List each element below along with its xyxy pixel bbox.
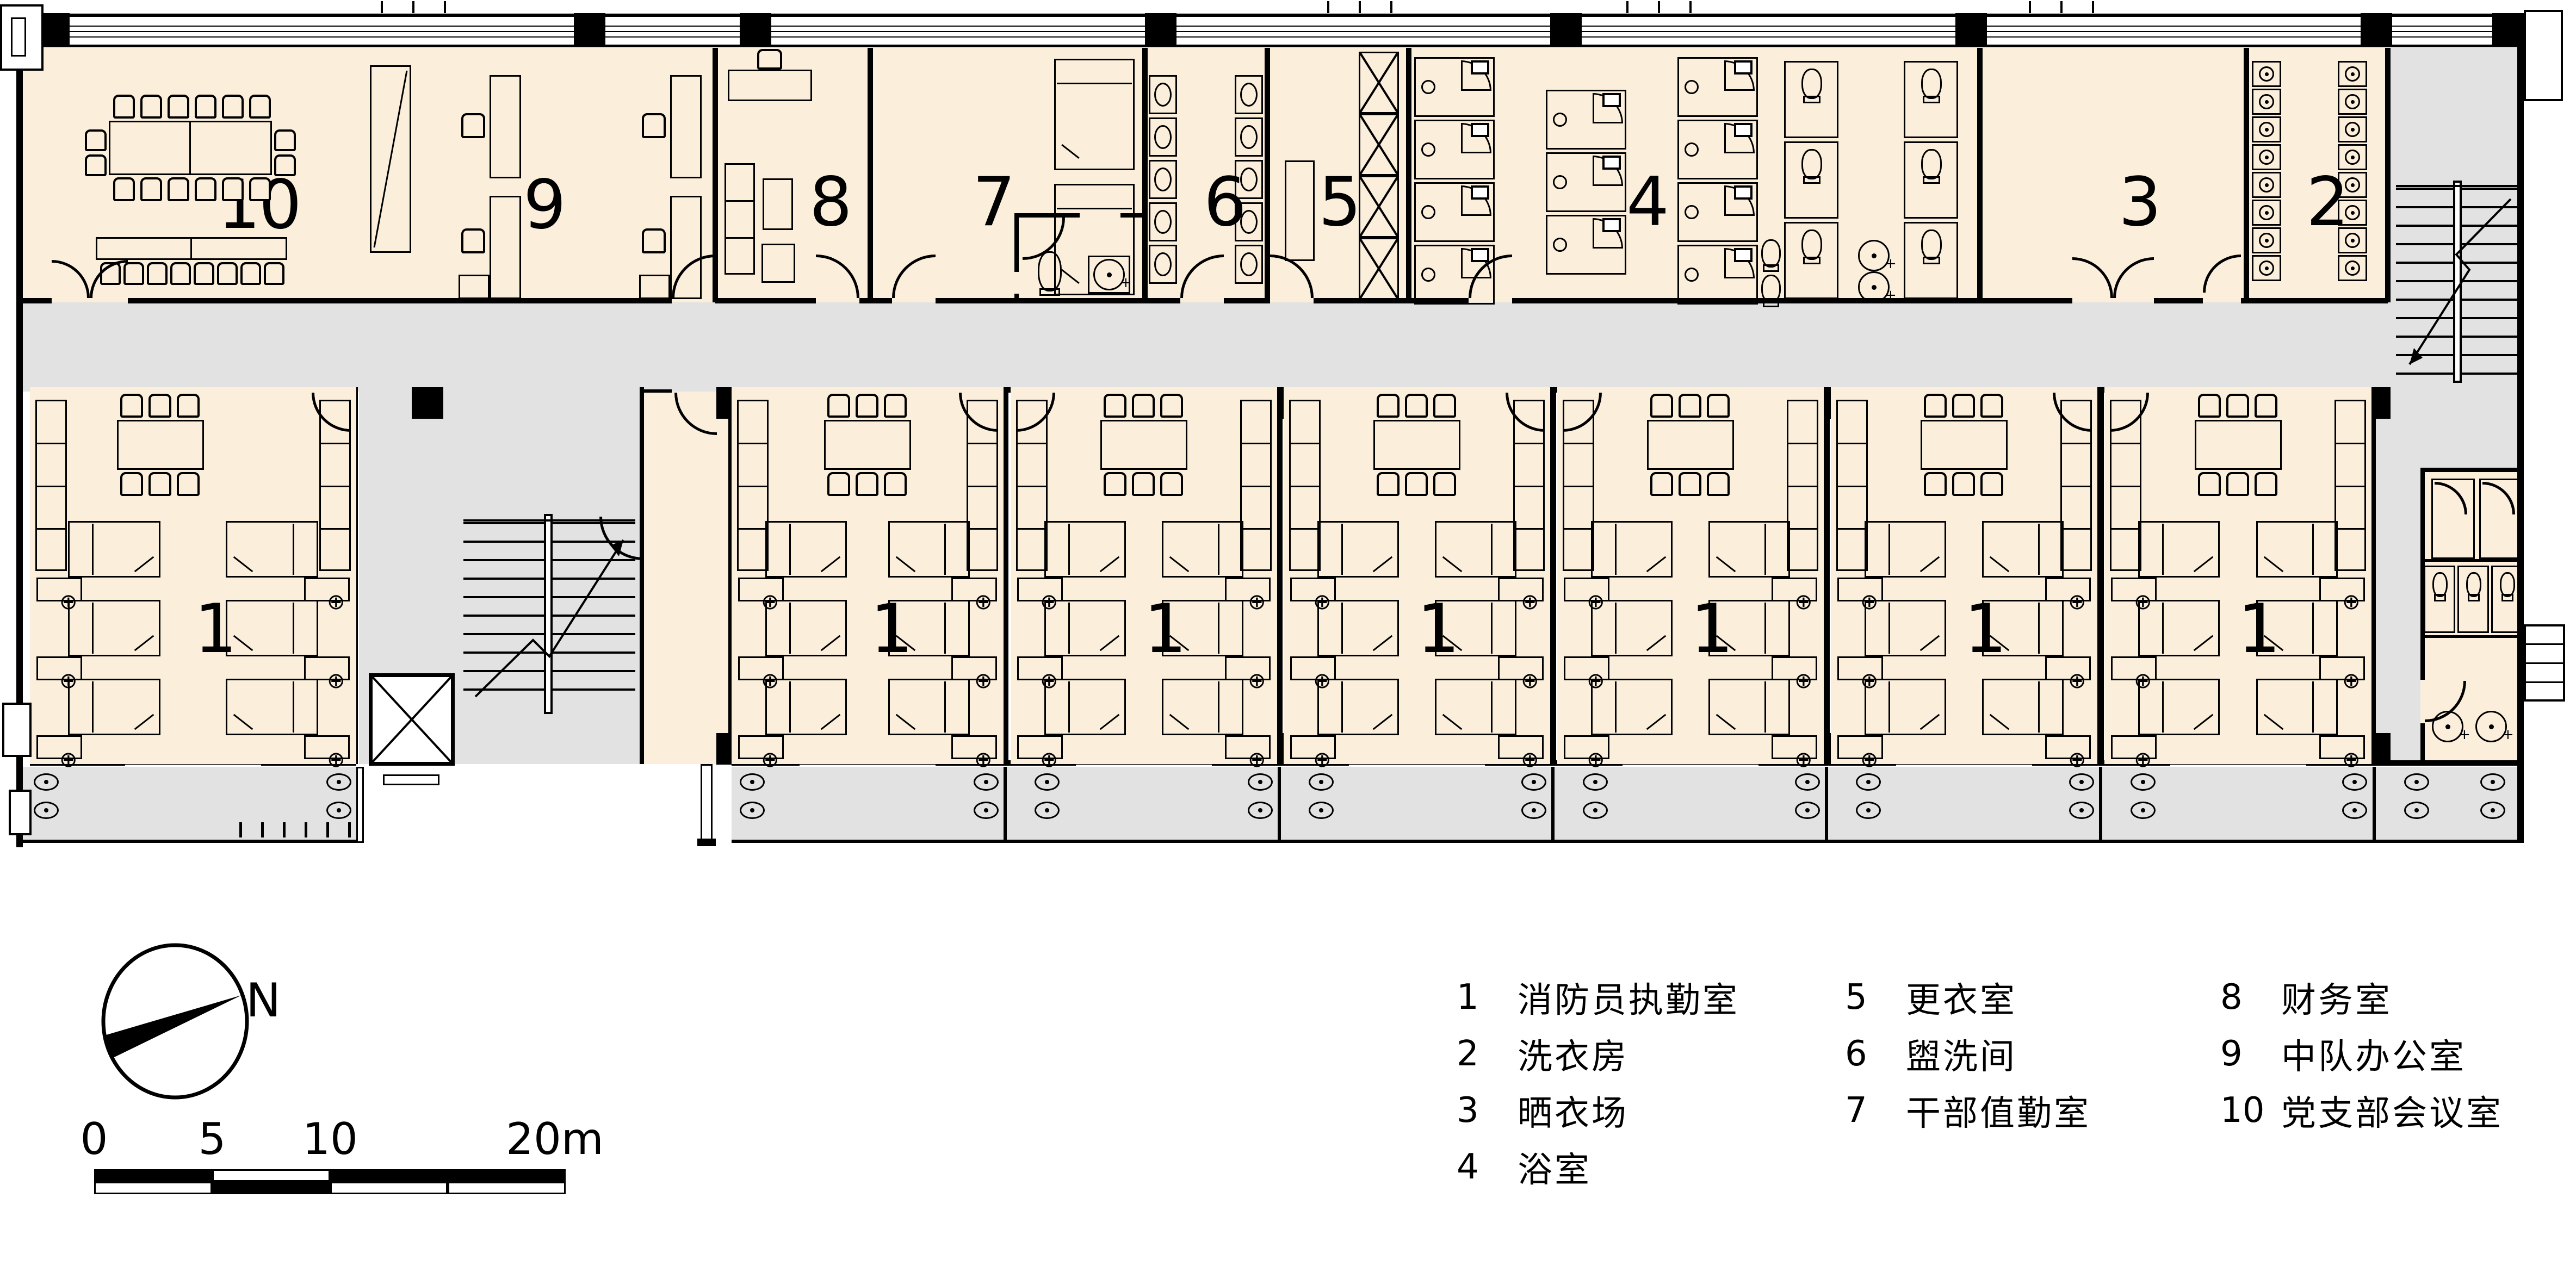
facade-tick bbox=[1359, 1, 1361, 13]
bed-pillow-line bbox=[1888, 524, 1890, 575]
balcony-grille-tick bbox=[305, 822, 307, 837]
legend-label: 盥洗间 bbox=[1906, 1029, 2017, 1079]
chair bbox=[2226, 472, 2249, 496]
floor-drain-dot bbox=[2414, 780, 2419, 784]
bed bbox=[1162, 521, 1243, 578]
bed-pillow-line bbox=[2312, 524, 2314, 575]
balcony-divider bbox=[1551, 767, 1555, 840]
floor-drain-dot bbox=[1258, 808, 1262, 812]
scale-label-10: 10 bbox=[302, 1114, 358, 1164]
bed-pillow-line bbox=[293, 603, 294, 654]
stair-landing-edge bbox=[463, 519, 635, 522]
bed bbox=[1162, 600, 1243, 656]
bed-pillow-line bbox=[293, 681, 294, 733]
chair bbox=[1952, 472, 1975, 496]
legend-item: 7干部值勤室 bbox=[1845, 1082, 2091, 1139]
legend-label: 更衣室 bbox=[1906, 972, 2017, 1022]
shower-head bbox=[1734, 123, 1753, 137]
shower-drain bbox=[1421, 268, 1435, 282]
legend-num: 2 bbox=[1457, 1034, 1518, 1074]
chair bbox=[757, 49, 782, 70]
chair bbox=[148, 472, 171, 496]
toilet-tank bbox=[1923, 257, 1940, 264]
bed-pillow-line bbox=[1615, 681, 1617, 733]
step-line bbox=[2524, 662, 2565, 664]
armchair bbox=[761, 244, 795, 283]
toilet bbox=[1921, 229, 1942, 260]
wardrobe-divider bbox=[319, 528, 351, 530]
corridor bbox=[23, 302, 2524, 392]
washer-dot bbox=[2265, 128, 2269, 132]
toilet bbox=[1801, 229, 1822, 260]
toilet bbox=[1761, 239, 1781, 268]
balcony-end-post bbox=[356, 767, 364, 843]
facade-tick bbox=[412, 1, 414, 13]
bed-pillow-line bbox=[1057, 208, 1132, 209]
chair bbox=[85, 154, 107, 176]
legend-item: 5更衣室 bbox=[1845, 969, 2091, 1026]
balcony-divider bbox=[2099, 767, 2102, 840]
elevator-sill bbox=[383, 774, 439, 785]
legend-item: 1消防员执勤室 bbox=[1457, 969, 1739, 1026]
wardrobe-divider bbox=[1016, 486, 1048, 487]
bed-pillow-line bbox=[2038, 603, 2040, 654]
desk bbox=[490, 75, 521, 178]
legend-num: 7 bbox=[1845, 1090, 1906, 1131]
wardrobe-divider bbox=[1513, 443, 1545, 444]
shower-head bbox=[1471, 60, 1489, 75]
chair bbox=[222, 95, 244, 119]
legend-num: 9 bbox=[2220, 1034, 2281, 1074]
wall bbox=[740, 13, 771, 45]
shower-drain bbox=[1421, 205, 1435, 219]
chair bbox=[1433, 394, 1456, 418]
bed bbox=[226, 679, 318, 735]
floor-drain-dot bbox=[1593, 780, 1597, 784]
floor-drain-dot bbox=[1258, 780, 1262, 784]
floor-drain-dot bbox=[1045, 808, 1049, 812]
floor-drain-dot bbox=[1532, 780, 1536, 784]
north-label: N bbox=[246, 973, 281, 1028]
wall bbox=[1550, 387, 1556, 764]
shower-drain bbox=[1421, 80, 1435, 94]
washer-dot bbox=[2265, 156, 2269, 159]
bed bbox=[2256, 521, 2338, 578]
stair-rail-extension bbox=[701, 764, 713, 843]
bed-pillow-line bbox=[293, 524, 294, 575]
shower-head bbox=[1734, 185, 1753, 200]
locker-x-icon bbox=[1359, 238, 1399, 300]
wall bbox=[2361, 13, 2392, 45]
floor-drain-dot bbox=[2141, 808, 2145, 812]
wall bbox=[16, 298, 52, 303]
washbasin-bowl bbox=[1240, 167, 1258, 191]
floor-drain-dot bbox=[1045, 780, 1049, 784]
chair bbox=[461, 113, 485, 138]
wardrobe-divider bbox=[2334, 528, 2366, 530]
bed-pillow-line bbox=[1615, 603, 1617, 654]
floor-drain-dot bbox=[2079, 780, 2084, 784]
bed-pillow-line bbox=[1491, 603, 1493, 654]
bed-pillow-line bbox=[1218, 681, 1219, 733]
desk bbox=[490, 196, 521, 299]
washbasin-bowl bbox=[1154, 83, 1172, 107]
chair bbox=[1104, 472, 1126, 496]
wardrobe-divider bbox=[1836, 443, 1868, 444]
floor-drain-dot bbox=[984, 780, 988, 784]
legend-label: 浴室 bbox=[1518, 1142, 1592, 1192]
wall bbox=[1145, 13, 1176, 45]
chair bbox=[274, 154, 296, 176]
shower-head bbox=[1734, 248, 1753, 262]
planter-box bbox=[2, 703, 32, 757]
floor-drain-dot bbox=[1593, 808, 1597, 812]
desk bbox=[728, 70, 812, 101]
wall bbox=[1955, 13, 1987, 45]
dorm-table bbox=[117, 420, 204, 470]
legend-label: 消防员执勤室 bbox=[1518, 972, 1739, 1022]
chair bbox=[168, 95, 189, 119]
legend-num: 1 bbox=[1457, 977, 1518, 1017]
wardrobe-divider bbox=[2110, 486, 2141, 487]
floor-plan: 1098765432+++1⊕⊕⊕⊕⊕⊕1⊕⊕⊕⊕⊕⊕1⊕⊕⊕⊕⊕⊕1⊕⊕⊕⊕⊕… bbox=[0, 0, 2576, 1272]
dorm-table bbox=[1647, 420, 1734, 470]
scalebar-seg bbox=[94, 1182, 212, 1194]
chair bbox=[1980, 472, 2003, 496]
washer-dot bbox=[2351, 72, 2355, 76]
wall bbox=[2154, 298, 2203, 303]
sink-dot bbox=[2489, 724, 2494, 729]
bed bbox=[1982, 679, 2064, 735]
bed bbox=[226, 600, 318, 656]
bed-pillow-line bbox=[2162, 524, 2164, 575]
facade-tick bbox=[1689, 1, 1692, 13]
chair bbox=[884, 394, 907, 418]
legend-label: 中队办公室 bbox=[2281, 1029, 2466, 1079]
balcony-divider bbox=[1278, 767, 1281, 840]
floor-drain-dot bbox=[2414, 808, 2419, 812]
bed-pillow-line bbox=[1888, 603, 1890, 654]
locker-x-icon bbox=[1359, 114, 1399, 176]
shower-drain bbox=[1685, 80, 1699, 94]
wardrobe-divider bbox=[2110, 443, 2141, 444]
legend-label: 党支部会议室 bbox=[2281, 1085, 2503, 1136]
chair bbox=[856, 394, 878, 418]
toilet bbox=[1801, 69, 1822, 99]
chair bbox=[1433, 472, 1456, 496]
scalebar-seg bbox=[448, 1182, 566, 1194]
wardrobe-divider bbox=[2110, 528, 2141, 530]
floor-drain-dot bbox=[1532, 808, 1536, 812]
bed bbox=[1044, 521, 1126, 578]
sofa bbox=[725, 163, 755, 275]
bed bbox=[1708, 600, 1790, 656]
wall bbox=[2385, 48, 2391, 302]
floor-drain-dot bbox=[984, 808, 988, 812]
chair bbox=[2255, 472, 2277, 496]
bed-pillow-line bbox=[1068, 681, 1070, 733]
shower-drain bbox=[1685, 142, 1699, 157]
wardrobe-divider bbox=[1240, 486, 1272, 487]
legend-item: 9中队办公室 bbox=[2220, 1026, 2503, 1082]
chair bbox=[195, 177, 216, 201]
wall bbox=[1120, 213, 1145, 218]
toilet bbox=[1801, 149, 1822, 179]
wardrobe-divider bbox=[2334, 486, 2366, 487]
wardrobe-divider bbox=[2060, 528, 2092, 530]
toilet bbox=[1761, 275, 1781, 303]
shower-head bbox=[1471, 185, 1489, 200]
legend-label: 晒衣场 bbox=[1518, 1085, 1628, 1136]
toilet-partition bbox=[2420, 635, 2524, 638]
floor-drain-dot bbox=[44, 780, 48, 784]
toilet-tank bbox=[1803, 96, 1820, 103]
scale-label-5: 5 bbox=[199, 1114, 226, 1164]
sofa-cushion bbox=[725, 237, 755, 239]
wall bbox=[859, 298, 892, 303]
chair bbox=[461, 228, 485, 253]
washer-dot bbox=[2351, 156, 2355, 159]
toilet-tank bbox=[1039, 288, 1060, 296]
washer-dot bbox=[2265, 100, 2269, 104]
shower-head bbox=[1734, 60, 1753, 75]
wall bbox=[2517, 767, 2524, 843]
wall bbox=[2517, 14, 2524, 767]
shower-drain bbox=[1685, 205, 1699, 219]
wall bbox=[574, 13, 605, 45]
wardrobe-divider bbox=[1016, 443, 1048, 444]
wall bbox=[16, 45, 2529, 47]
facade-tick bbox=[1327, 1, 1329, 13]
bed-pillow-line bbox=[1341, 681, 1343, 733]
locker-x-icon bbox=[1359, 176, 1399, 238]
wardrobe-divider bbox=[319, 443, 351, 444]
legend-num: 10 bbox=[2220, 1090, 2281, 1131]
chair bbox=[642, 113, 666, 138]
floor-drain-dot bbox=[1866, 808, 1871, 812]
legend-label: 干部值勤室 bbox=[1906, 1085, 2091, 1136]
desk-return bbox=[639, 275, 670, 299]
chair bbox=[884, 472, 907, 496]
wall bbox=[868, 48, 873, 302]
floor-drain-dot bbox=[2491, 808, 2495, 812]
chair bbox=[249, 95, 271, 119]
chair bbox=[264, 262, 284, 285]
bed bbox=[888, 679, 970, 735]
bed bbox=[68, 521, 160, 578]
chair bbox=[1679, 472, 1701, 496]
chair bbox=[194, 262, 214, 285]
toilet-partition bbox=[2420, 559, 2524, 562]
bed-pillow-line bbox=[92, 603, 94, 654]
bed-pillow-line bbox=[1491, 524, 1493, 575]
facade-tick bbox=[1626, 1, 1628, 13]
washbasin-bowl bbox=[1240, 210, 1258, 234]
wardrobe-divider bbox=[1513, 486, 1545, 487]
washbasin-bowl bbox=[1154, 167, 1172, 191]
floor-drain-dot bbox=[1319, 808, 1323, 812]
washbasin-bowl bbox=[1154, 210, 1172, 234]
chair bbox=[827, 472, 850, 496]
bed-pillow-line bbox=[944, 524, 946, 575]
sink-dot bbox=[1872, 285, 1877, 290]
scalebar-seg bbox=[212, 1182, 330, 1194]
legend-item: 10党支部会议室 bbox=[2220, 1082, 2503, 1139]
locker-x-icon bbox=[1359, 52, 1399, 114]
dorm-table bbox=[2195, 420, 2282, 470]
chair bbox=[856, 472, 878, 496]
bed-pillow-line bbox=[1218, 603, 1219, 654]
shower-head bbox=[1471, 123, 1489, 137]
bed-pillow-line bbox=[2038, 524, 2040, 575]
chair bbox=[1405, 394, 1428, 418]
facade-tick bbox=[2092, 1, 2094, 13]
chair bbox=[1160, 472, 1183, 496]
floor-drain-dot bbox=[1805, 780, 1810, 784]
balcony-grille-tick bbox=[348, 822, 351, 837]
bed bbox=[1982, 600, 2064, 656]
chair bbox=[1650, 394, 1673, 418]
side-table-divider bbox=[190, 237, 192, 260]
bed-pillow-line bbox=[1888, 681, 1890, 733]
washbasin-bowl bbox=[1240, 83, 1258, 107]
bed bbox=[2256, 679, 2338, 735]
chair bbox=[1707, 472, 1730, 496]
legend-item: 8财务室 bbox=[2220, 969, 2503, 1026]
floor-drain-dot bbox=[2352, 808, 2357, 812]
bed-pillow-line bbox=[944, 681, 946, 733]
wall bbox=[732, 840, 2524, 843]
floor-drain-dot bbox=[1805, 808, 1810, 812]
wardrobe-divider bbox=[1016, 528, 1048, 530]
balcony-grille-tick bbox=[283, 822, 286, 837]
legend-item: 2洗衣房 bbox=[1457, 1026, 1739, 1082]
stair-up-arrow-icon bbox=[468, 525, 631, 704]
chair bbox=[642, 228, 666, 253]
wall bbox=[2492, 13, 2524, 45]
chair bbox=[120, 394, 143, 418]
floor-drain-dot bbox=[2079, 808, 2084, 812]
chair bbox=[1132, 394, 1155, 418]
wall bbox=[1014, 218, 1019, 272]
balcony-divider bbox=[1004, 767, 1007, 840]
chair bbox=[85, 129, 107, 151]
bed-pillow-line bbox=[1341, 524, 1343, 575]
legend-item: 4浴室 bbox=[1457, 1139, 1739, 1195]
wall bbox=[128, 298, 672, 303]
chair bbox=[1132, 472, 1155, 496]
step-line bbox=[2524, 681, 2565, 683]
chair bbox=[1650, 472, 1673, 496]
wardrobe-divider bbox=[1240, 443, 1272, 444]
bench bbox=[1285, 160, 1315, 261]
toilet bbox=[1038, 251, 1062, 291]
wardrobe-divider bbox=[737, 528, 769, 530]
floor-drain-dot bbox=[750, 780, 754, 784]
chair bbox=[195, 95, 216, 119]
dorm-table bbox=[1921, 420, 2008, 470]
bed bbox=[1865, 521, 1946, 578]
bed-pillow-line bbox=[2312, 603, 2314, 654]
bed bbox=[68, 600, 160, 656]
chair bbox=[1104, 394, 1126, 418]
wall bbox=[2097, 387, 2104, 764]
dorm-table bbox=[1373, 420, 1460, 470]
wall bbox=[1014, 213, 1080, 218]
balcony-grille-tick bbox=[326, 822, 329, 837]
wardrobe-divider bbox=[737, 486, 769, 487]
sink-dot bbox=[1872, 253, 1877, 258]
floor-drain-dot bbox=[750, 808, 754, 812]
wardrobe-divider bbox=[1563, 486, 1594, 487]
shower-head bbox=[1602, 156, 1621, 170]
chair bbox=[217, 262, 238, 285]
washer-dot bbox=[2265, 266, 2269, 270]
toilet bbox=[1921, 149, 1942, 179]
chair bbox=[222, 177, 244, 201]
scalebar-seg bbox=[212, 1169, 330, 1182]
bed-pillow-line bbox=[789, 681, 791, 733]
washbasin-bowl bbox=[1154, 252, 1172, 276]
scalebar-seg bbox=[94, 1169, 212, 1182]
bed bbox=[1591, 521, 1673, 578]
floor-drain-dot bbox=[2491, 780, 2495, 784]
bed-pillow-line bbox=[1068, 603, 1070, 654]
bed-pillow-line bbox=[789, 524, 791, 575]
washer-dot bbox=[2351, 128, 2355, 132]
bed-pillow-line bbox=[1615, 524, 1617, 575]
chair bbox=[177, 472, 200, 496]
chair bbox=[140, 177, 162, 201]
bed bbox=[1435, 521, 1516, 578]
scalebar-seg bbox=[330, 1169, 566, 1182]
chair bbox=[1377, 472, 1400, 496]
balcony-main bbox=[732, 767, 2524, 843]
toilet-tank bbox=[2434, 594, 2446, 601]
wardrobe-divider bbox=[35, 486, 67, 487]
legend-num: 4 bbox=[1457, 1147, 1518, 1187]
scalebar-seg bbox=[330, 1182, 448, 1194]
floor-drain-dot bbox=[337, 780, 341, 784]
corridor-toilet-access bbox=[2374, 472, 2420, 764]
bed bbox=[1435, 679, 1516, 735]
toilet-tank bbox=[1923, 96, 1940, 103]
chair bbox=[1924, 472, 1947, 496]
bed-pillow-line bbox=[1764, 603, 1766, 654]
wardrobe-divider bbox=[737, 443, 769, 444]
east-protrusion bbox=[2524, 10, 2563, 101]
wall bbox=[1265, 48, 1270, 302]
bed bbox=[68, 679, 160, 735]
planter-box bbox=[9, 790, 32, 835]
chair bbox=[140, 95, 162, 119]
shelf-diagonal bbox=[370, 65, 411, 253]
glazing-line bbox=[23, 31, 2523, 32]
shower-drain bbox=[1553, 238, 1567, 252]
toilet-tank bbox=[2501, 594, 2513, 601]
facade-tick bbox=[444, 1, 446, 13]
toilet-tank bbox=[1803, 176, 1820, 184]
bed-pillow-line bbox=[1491, 681, 1493, 733]
wall bbox=[23, 840, 356, 843]
floor-drain-dot bbox=[337, 808, 341, 812]
washer-dot bbox=[2351, 211, 2355, 215]
chair bbox=[170, 262, 191, 285]
wardrobe-divider bbox=[1513, 528, 1545, 530]
chair bbox=[274, 129, 296, 151]
chair bbox=[1679, 394, 1701, 418]
vestibule-wall bbox=[642, 389, 672, 393]
